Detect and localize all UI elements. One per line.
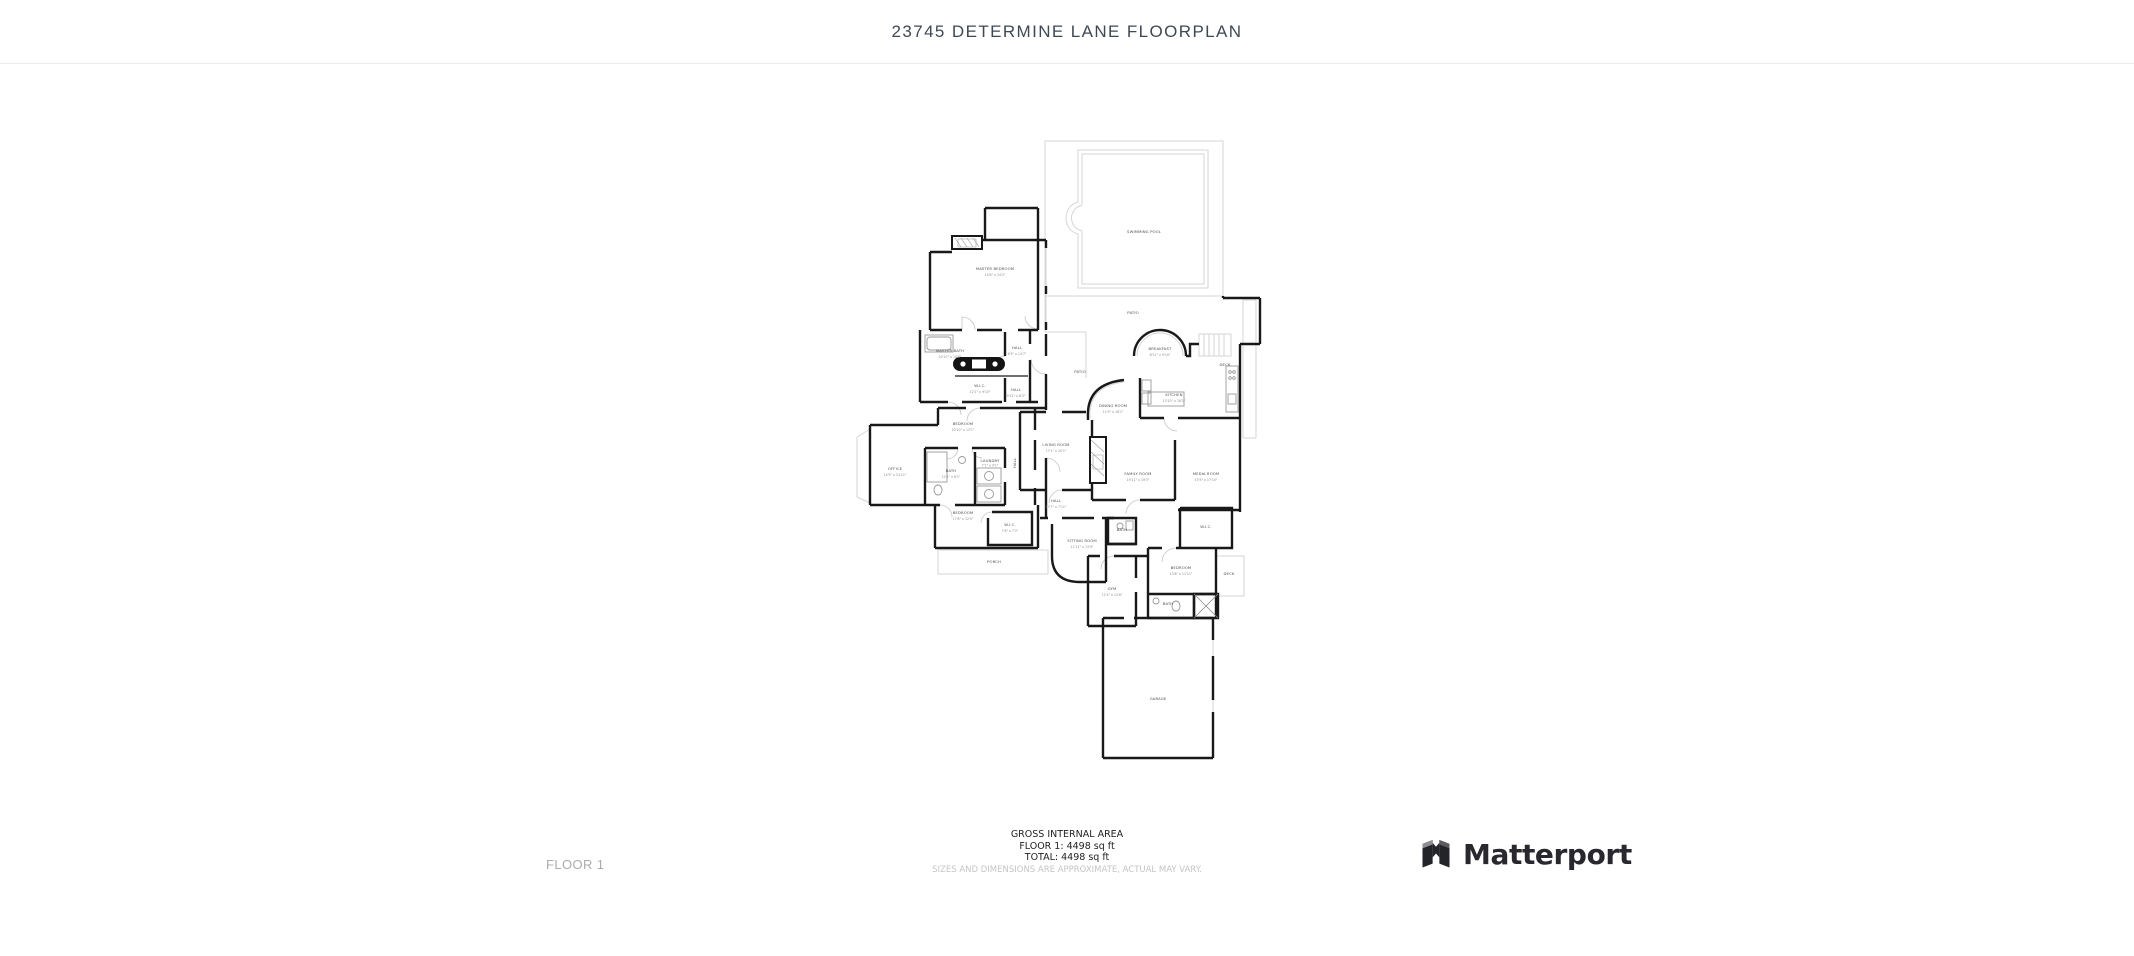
room-dims-media-room: 13'5" x 17'10" [1195, 478, 1218, 482]
room-label-gym: GYM [1108, 586, 1117, 591]
room-label-bath-3: BATH [1117, 527, 1128, 532]
room-label-media-room: MEDIA ROOM [1193, 471, 1220, 476]
room-label-deck-lower: DECK [1224, 571, 1235, 576]
vanity-fixture [953, 357, 1005, 371]
room-label-wic-master: W.I.C. [974, 383, 985, 388]
room-label-wic-2: W.I.C. [1004, 522, 1015, 527]
walls-lower-right [1148, 508, 1232, 618]
room-label-master-bedroom: MASTER BEDROOM [976, 266, 1014, 271]
area-summary-floor-line: FLOOR 1: 4498 sq ft [867, 841, 1267, 853]
matterport-wordmark: Matterport [1463, 838, 1632, 871]
room-dims-bedroom-4: 13'8" x 11'11" [1170, 572, 1193, 576]
matterport-logo-icon [1418, 836, 1454, 872]
room-label-bath-4: BATH [1163, 601, 1174, 606]
room-label-hall-lower: HALL [1051, 498, 1062, 503]
room-label-office: OFFICE [888, 466, 903, 471]
room-label-living-room: LIVING ROOM [1042, 442, 1069, 447]
room-label-deck-right: DECK [1220, 362, 1231, 367]
room-dims-hall-upper: 6'5" x 14'7" [1008, 352, 1027, 356]
room-label-bedroom-2: BEDROOM [953, 421, 974, 426]
room-dims-bedroom-2: 10'10" x 13'1" [952, 428, 975, 432]
room-dims-gym: 11'4" x 12'8" [1102, 593, 1123, 597]
area-summary-disclaimer: SIZES AND DIMENSIONS ARE APPROXIMATE, AC… [867, 865, 1267, 877]
area-summary-total-line: TOTAL: 4498 sq ft [867, 852, 1267, 864]
room-label-master-bath: MASTER BATH [936, 348, 964, 353]
room-dims-breakfast: 8'11" x 9'10" [1150, 353, 1171, 357]
outdoor-outlines [857, 141, 1256, 712]
matterport-logo: Matterport [1418, 836, 1632, 872]
room-dims-family-room: 19'11" x 19'3" [1127, 478, 1150, 482]
room-dims-bath-2: 12'1" x 6'1" [942, 475, 961, 479]
room-label-breakfast: BREAKFAST [1149, 346, 1173, 351]
room-labels: SWIMMING POOL PATIO PATIO MASTER BEDROOM… [884, 229, 1235, 701]
walls-family-media [1092, 420, 1240, 512]
room-label-patio-terrace: PATIO [1074, 369, 1085, 374]
room-label-hall-upper: HALL [1012, 345, 1023, 350]
room-dims-sitting-room: 11'11" x 13'9" [1071, 545, 1094, 549]
room-dims-master-bath: 20'10" x 14'8" [939, 355, 962, 359]
walls [870, 208, 1260, 758]
room-label-bedroom-4: BEDROOM [1171, 565, 1192, 570]
room-label-hall-mid: HALL [1011, 387, 1022, 392]
room-label-garage: GARAGE [1150, 696, 1167, 701]
room-dims-wic-master: 12'1" x 9'10" [970, 390, 991, 394]
room-label-sitting-room: SITTING ROOM [1067, 538, 1097, 543]
area-summary-heading: GROSS INTERNAL AREA [867, 829, 1267, 841]
room-dims-hall-mid: 9'11" x 8'3" [1007, 394, 1026, 398]
header: 23745 DETERMINE LANE FLOORPLAN [0, 0, 2134, 64]
room-dims-laundry: 7'1" x 9'1" [982, 464, 999, 468]
room-dims-living-room: 17'1" x 20'1" [1046, 449, 1067, 453]
walls-garage [1103, 618, 1213, 758]
room-dims-master-bedroom: 14'8" x 24'2" [985, 273, 1006, 277]
room-label-bedroom-3: BEDROOM [953, 510, 974, 515]
room-label-hall-vertical: HALL [1012, 457, 1017, 468]
room-dims-dining-room: 11'9" x 18'1" [1103, 410, 1124, 414]
room-label-swimming-pool: SWIMMING POOL [1127, 229, 1162, 234]
room-dims-kitchen: 13'10" x 16'1" [1163, 399, 1186, 403]
floor-selector[interactable]: FLOOR 1 [546, 857, 604, 872]
room-label-bath-2: BATH [946, 468, 957, 473]
room-label-laundry: LAUNDRY [981, 458, 1000, 463]
walls-gym [1088, 556, 1148, 626]
room-label-patio-upper: PATIO [1127, 310, 1138, 315]
room-label-kitchen: KITCHEN [1165, 392, 1182, 397]
page-title: 23745 DETERMINE LANE FLOORPLAN [892, 22, 1243, 42]
room-label-dining-room: DINING ROOM [1099, 403, 1127, 408]
room-dims-office: 14'5" x 14'11" [884, 473, 907, 477]
area-summary: GROSS INTERNAL AREA FLOOR 1: 4498 sq ft … [867, 829, 1267, 876]
floorplan-drawing: SWIMMING POOL PATIO PATIO MASTER BEDROOM… [850, 130, 1275, 770]
room-label-family-room: FAMILY ROOM [1124, 471, 1151, 476]
room-dims-hall-lower: 27'7" x 7'11" [1046, 505, 1067, 509]
room-label-porch: PORCH [987, 559, 1001, 564]
room-dims-wic-2: 7'8" x 7'2" [1002, 529, 1019, 533]
room-dims-bedroom-3: 17'8" x 12'0" [953, 517, 974, 521]
room-label-wic-3: W.I.C. [1200, 524, 1211, 529]
